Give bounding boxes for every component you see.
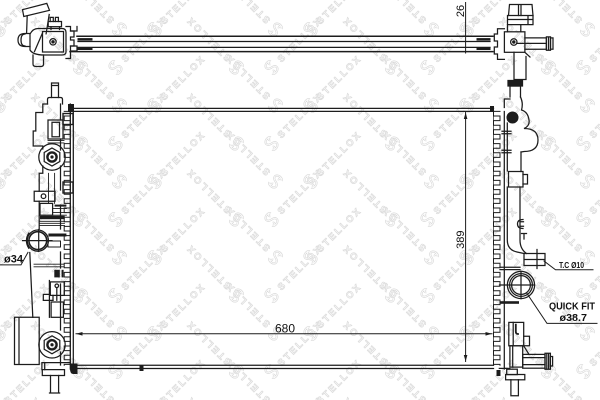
svg-text:ø38.7: ø38.7 bbox=[560, 312, 588, 324]
svg-text:389: 389 bbox=[455, 231, 467, 249]
svg-text:ø34: ø34 bbox=[4, 254, 24, 266]
svg-text:680: 680 bbox=[275, 322, 295, 336]
svg-text:26: 26 bbox=[455, 5, 467, 17]
svg-text:QUICK FIT: QUICK FIT bbox=[549, 302, 595, 313]
svg-text:T.C Ø10: T.C Ø10 bbox=[559, 261, 584, 270]
